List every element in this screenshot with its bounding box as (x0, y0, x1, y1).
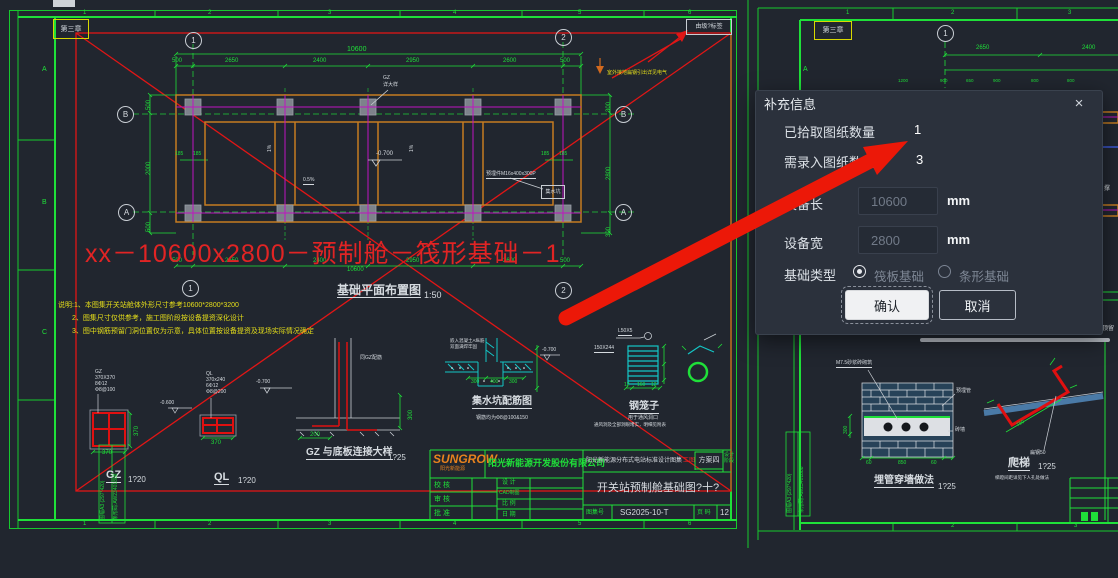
detail-label: 嵌入混凝土A纵筋 (450, 339, 485, 344)
detail-caption: 钢笼子 (629, 402, 659, 414)
elevation-label: -0.700 (256, 380, 270, 385)
dim: 300 (509, 380, 517, 385)
ruler-number: 6 (688, 10, 691, 16)
dim: 160 (637, 383, 645, 388)
picked-count-value: 1 (914, 122, 921, 137)
dim: 2400 (313, 58, 326, 64)
dim: 2950 (406, 58, 419, 64)
sump-box: 集水坑 (541, 185, 565, 199)
axis-bubble-A: A (615, 204, 632, 221)
dim: 185 (175, 152, 183, 157)
dim: 2400 (1082, 45, 1095, 51)
dim: 500 (560, 258, 570, 264)
ruler-number: 4 (453, 521, 456, 527)
detail-label: M7.5砂浆砖砌筑 (836, 361, 872, 368)
plan-title: 基础平面布置图 (337, 284, 421, 298)
zone-tag: 第三章 (53, 19, 89, 39)
radio-raft-label: 筏板基础 (874, 266, 924, 285)
detail-subcaption: 通风洞及全部洞眼堵实，明细见附表 (594, 423, 666, 428)
detail-scale: 1?20 (128, 476, 146, 484)
ruler-number: 3 (328, 10, 331, 16)
barcode-label: 条形码:AW23401888 (800, 466, 805, 513)
dim: 370 (134, 426, 140, 436)
sheet-format-label: 图幅A3 (297*420) (101, 481, 106, 520)
close-icon[interactable]: × (1070, 94, 1088, 112)
dialog-title: 补充信息 (764, 98, 816, 111)
titleblock-row: 批 准 (434, 510, 450, 517)
page-label: 页 码 (697, 510, 711, 516)
dim: 185 (193, 152, 201, 157)
album-title: 阳光新能源分布式电站标准设计图集 (586, 458, 682, 464)
gz-callout: GZ (383, 76, 390, 81)
dim: 850 (898, 461, 906, 466)
dim: 400 (490, 380, 498, 385)
slope-label: 0.5% (303, 178, 314, 185)
dim: 500 (560, 58, 570, 64)
device-length-label: 设备长 (784, 194, 823, 213)
dim: 60 (931, 461, 937, 466)
zone-tag-label: 第三章 (823, 27, 844, 34)
detail-caption: GZ 与底板连接大样 (306, 448, 393, 460)
confirm-button[interactable]: 确认 (845, 290, 929, 320)
corner-tag-label: 由级?标签 (695, 24, 722, 30)
note-line: 2、图集尺寸仅供参考，施工图阶段按设备提资深化设计 (72, 315, 244, 322)
dim: 2600 (503, 58, 516, 64)
titleblock-row: 比 例 (502, 501, 516, 507)
ruler-number: 3 (1074, 523, 1077, 529)
ruler-letter: C (42, 329, 47, 336)
detail-subcaption: 钢筋均为Φ8@100&150 (476, 416, 528, 421)
cad-viewer-canvas: 1 2 3 4 5 6 1 2 3 4 5 6 A B C 第三章 由级?标签 … (0, 0, 1118, 578)
dim: 800 (1067, 79, 1075, 84)
ruler-number: 2 (951, 523, 954, 529)
picked-count-label: 已拾取图纸数量 (784, 122, 875, 141)
sungrow-logo-sub: 阳光新能源 (440, 467, 465, 472)
detail-subcaption: 用于通风洞口 (628, 416, 658, 421)
corner-tag: 由级?标签 (686, 19, 732, 35)
scheme-box: 方案四 (695, 452, 723, 469)
dim: 500 (146, 100, 152, 110)
ruler-letter: A (42, 66, 47, 73)
detail-subcaption: 梯蹬间距详见下人孔处做法 (995, 476, 1049, 481)
detail-scale: 1?25 (938, 483, 956, 491)
gz-callout: 详大样 (383, 83, 398, 88)
device-width-unit: mm (947, 232, 970, 247)
radio-strip-label: 条形基础 (959, 266, 1009, 285)
detail-caption: 爬梯 (1008, 458, 1030, 471)
elevation-label: -0.700 (542, 348, 556, 353)
dim: 2000 (146, 162, 152, 175)
device-width-input[interactable] (858, 226, 938, 254)
supplementary-info-dialog: 补充信息 已拾取图纸数量 1 需录入图纸数量 3 设备长 mm 设备宽 mm 基… (755, 90, 1103, 335)
slope-label: 1% (410, 145, 415, 152)
detail-scale: 1?25 (1038, 463, 1056, 471)
detail-caption: 埋管穿墙做法 (874, 476, 934, 488)
catalog-number: SG2025-10-T (620, 509, 668, 517)
ruler-letter: A (803, 66, 808, 73)
page-number: 12 (720, 509, 729, 517)
needed-count-value: 3 (916, 152, 923, 167)
cancel-button[interactable]: 取消 (939, 290, 1016, 320)
detail-label: 砖墙 (955, 428, 965, 433)
dim: 300 (471, 380, 479, 385)
stage-column: 设计阶段 (724, 452, 735, 464)
ruler-number: 5 (578, 521, 581, 527)
ground-note: 室外接地扁钢引出详见电气 (607, 71, 667, 76)
zone-tag-label: 第三章 (61, 26, 82, 33)
edge-text-fragment: 撑 (1104, 186, 1110, 192)
axis-bubble-A: A (118, 204, 135, 221)
detail-label: L50X5 (618, 329, 632, 336)
titleblock-row: 校 核 (434, 482, 450, 489)
device-length-unit: mm (947, 193, 970, 208)
dim: 300 (408, 410, 414, 420)
barcode-label: 条形码:AW23401888 (114, 473, 119, 520)
edge-text-fragment: 顶留 (1102, 326, 1114, 332)
dim: 12 (651, 383, 657, 388)
ruler-number: 3 (1068, 10, 1071, 16)
ruler-number: 1 (83, 10, 86, 16)
embed-label: 预埋件M16x400x300P (486, 172, 536, 179)
ruler-number: 1 (83, 521, 86, 527)
axis-bubble-2: 2 (555, 29, 572, 46)
dim: 1200 (898, 79, 908, 84)
axis-bubble-2: 2 (555, 282, 572, 299)
detail-scale: 1?20 (238, 477, 256, 485)
device-length-input[interactable] (858, 187, 938, 215)
plan-scale: 1:50 (424, 291, 442, 300)
needed-count-label: 需录入图纸数量 (784, 152, 875, 171)
zone-tag: 第三章 (814, 21, 852, 40)
ruler-number: 1 (846, 10, 849, 16)
ruler-number: 2 (951, 10, 954, 16)
scheme-label: 方案四 (699, 457, 720, 464)
titleblock-row: 审 核 (434, 496, 450, 503)
catalog-label: 图集号 (586, 510, 604, 516)
dim: 60 (866, 461, 872, 466)
ruler-number: 6 (688, 521, 691, 527)
ruler-letter: B (42, 199, 47, 206)
dim: 2650 (976, 45, 989, 51)
dim: 500 (172, 58, 182, 64)
dim: 500 (146, 222, 152, 232)
axis-bubble-1: 1 (182, 280, 199, 297)
detail-label: 双面满焊牢固 (450, 345, 477, 350)
dim: 900 (993, 79, 1001, 84)
detail-label: 同GZ配筋 (360, 356, 382, 361)
overall-dim: 10600 (347, 46, 366, 53)
dim: 185 (541, 152, 549, 157)
dim: 2650 (225, 58, 238, 64)
drawing-title: 开关站预制舱基础图?十? (585, 483, 731, 494)
note-line: 说明:1、本图集开关站舱体外形尺寸参考10600*2800*3200 (58, 302, 239, 309)
titleblock-row: 设 计 (502, 480, 516, 486)
dim: 12 (624, 383, 630, 388)
dim: 185 (559, 152, 567, 157)
device-width-label: 设备宽 (784, 233, 823, 252)
dim: 300 (844, 426, 849, 434)
axis-bubble-1: 1 (937, 25, 954, 42)
ruler-number: 3 (328, 521, 331, 527)
sheet-format-label: 图幅A3 (297*420) (788, 474, 793, 513)
ruler-number: 2 (208, 521, 211, 527)
detail-caption: 集水坑配筋图 (472, 397, 532, 409)
axis-bubble-B: B (615, 106, 632, 123)
detail-label: Φ8@100 (95, 388, 115, 393)
dim: 370 (102, 450, 112, 456)
dim: 200 (310, 432, 320, 438)
dim: 800 (1031, 79, 1039, 84)
radio-strip-foundation[interactable] (938, 265, 951, 278)
dim: 650 (966, 79, 974, 84)
foundation-type-label: 基础类型 (784, 265, 836, 284)
album-stage: 工图 (683, 458, 695, 464)
dim: 2800 (606, 167, 612, 180)
elevation-label: -0.700 (376, 151, 393, 157)
titleblock-row: 日 期 (502, 512, 516, 518)
ruler-number: 5 (578, 10, 581, 16)
dim: 370 (211, 440, 221, 446)
dim: 900 (940, 79, 948, 84)
slope-label: 1% (268, 145, 273, 152)
note-line: 3、图中钢筋预留门洞位置仅为示意，具体位置按设备提资及现场实际情况确定 (72, 328, 314, 335)
titleblock-row: CAD制图 (499, 491, 520, 496)
horizontal-scrollbar[interactable] (920, 338, 1110, 342)
detail-label: Φ8@200 (206, 390, 226, 395)
cut-ui-fragment (53, 0, 75, 7)
detail-label: 预埋管 (956, 389, 971, 394)
dim: 300 (606, 227, 612, 237)
ruler-number: 2 (208, 10, 211, 16)
dim: 300 (606, 102, 612, 112)
axis-bubble-1: 1 (185, 32, 202, 49)
axis-bubble-B: B (117, 106, 134, 123)
detail-caption: QL (214, 472, 229, 485)
detail-scale: 1?25 (388, 454, 406, 462)
detail-label: 扁钢50 (1030, 451, 1046, 456)
detail-label: 150X244 (594, 346, 614, 353)
ruler-number: 4 (453, 10, 456, 16)
picked-sheet-red-label: xx－10600x2800－预制舱－筏形基础－1 (85, 242, 561, 267)
elevation-label: -0.600 (160, 401, 174, 406)
sump-box-label: 集水坑 (545, 190, 560, 195)
radio-raft-foundation[interactable] (853, 265, 866, 278)
